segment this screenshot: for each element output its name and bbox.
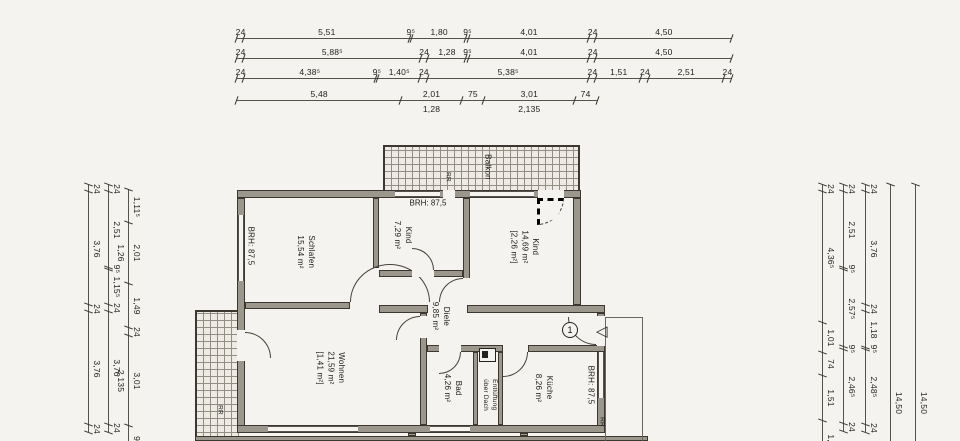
dimension-chain: 1,11⁵2,011,261,49243,012,13599 [128,190,129,441]
entrance-number-badge: 1 [562,322,578,338]
dimension-chain: 244,36⁵1,01741,511,49 [822,185,823,441]
door-kind2 [463,278,470,302]
dim-value: 3,76 [869,240,879,257]
room-label-kind2: Kind 14,69 m² [2,26 m²] [508,230,540,263]
dim-subvalue: 1,28 [423,104,440,114]
dim-value: 1,11⁵ [132,196,142,216]
window-kueche [598,352,604,398]
dim-value: 9⁵ [463,47,472,57]
dim-value: 24 [132,327,142,337]
wall-neighbor-stub-1 [408,433,416,436]
dim-value: 75 [468,89,478,99]
dim-value: 74 [581,89,591,99]
dim-value: 9⁵ [847,344,857,353]
dim-value: 24 [869,184,879,194]
wall-neighbor-bottom [195,436,648,441]
window-bad [430,426,470,432]
dim-value: 2,57⁵ [847,298,857,319]
door-balcony-wohnen [237,330,245,361]
dim-value: 24 [92,304,102,314]
dim-value: 4,50 [655,47,672,57]
wall-schlafen-bottom [245,302,350,309]
balcony-left [195,310,239,441]
dim-value: 74 [826,359,836,369]
room-label-wohnen: Wohnen 21,59 m² [1,41 m²] [314,351,346,384]
dim-value: 24 [112,303,122,313]
dim-value: 9⁵ [112,265,122,274]
door-bad [439,345,461,352]
rainpipe-label-balcony-left: RR [215,405,224,415]
dim-value: 5,48 [311,89,328,99]
dim-value: 1,28 [438,47,455,57]
room-label-schlafen: Schlafen 15,54 m² [294,235,316,268]
wall-neighbor-stub-2 [520,433,528,436]
stair-landing-outline [605,317,643,441]
dim-value: 5,38⁵ [498,67,519,77]
window-kind1 [395,191,440,197]
dim-value: 24 [112,423,122,433]
dim-value: 24 [112,184,122,194]
room-label-diele: Diele 9,85 m² [429,302,451,331]
dim-value: 2,51 [112,221,122,238]
dim-value: 1,40⁵ [389,67,410,77]
dim-value: 3,76 [92,360,102,377]
dim-value: 1,51 [610,67,627,77]
door-arc-kind2 [439,278,463,302]
dim-value: 2,46⁵ [847,376,857,397]
wall-entrance-top [467,305,605,313]
dim-value: 24 [92,184,102,194]
wall-shaft-left [473,352,478,425]
floor-plan-sheet: 1 ◁ Schlafen 15,54 m² Kind 7,29 m² Kind … [0,0,960,441]
dim-value: 1,51 [826,389,836,406]
door-arc-balcony-kind2 [537,198,564,225]
room-label-bad: Bad 4,26 m² [441,374,463,403]
door-arc-wohnen [396,316,420,340]
door-arc-double-left [350,264,390,302]
room-label-kind1: Kind 7,29 m² [391,221,413,250]
window-wohnen [268,426,358,432]
room-label-kueche: Küche 8,26 m² [532,374,554,403]
dimension-chain: 243,76241,189⁵2,48⁵24 [865,185,866,432]
dimension-chain: 242,519⁵2,57⁵9⁵2,46⁵24 [843,185,844,431]
dim-value: 24 [869,423,879,433]
dim-value: 1,15⁵ [112,277,122,298]
dim-value: 5,51 [318,27,335,37]
balcony-label: Balkon [482,154,493,180]
dim-value: 2,01 [423,89,440,99]
wall-schlafen-kind [373,198,379,268]
brh-label-top: BRH: 87,5 [410,199,447,208]
dimension-chain: 245,519⁵1,809⁵4,01244,50 [237,38,731,39]
dim-value: 9⁵ [869,345,879,354]
dimension-chain: 245,88⁵241,289⁵4,01244,50 [237,58,731,59]
dim-subvalue: 1,26 [116,245,126,262]
dim-value: 24 [847,422,857,432]
dimension-chain: 243,76243,7624 [88,185,89,432]
wall-right-upper [573,198,581,305]
dim-value: 4,01 [520,47,537,57]
dim-value: 2,01 [132,245,142,262]
dim-value: 24 [92,424,102,434]
door-arc-kueche [503,352,528,377]
dimension-chain: 5,482,011,28753,012,13574 [237,100,597,101]
window-schlafen [238,215,244,281]
dim-value: 1,80 [431,27,448,37]
dim-value: 1,49 [826,434,836,441]
dim-value: 3,01 [521,89,538,99]
dim-subvalue: 2,135 [518,104,540,114]
dim-value: 5,88⁵ [322,47,343,57]
dim-value: 14,50 [919,391,929,413]
dim-value: 4,38⁵ [299,67,320,77]
dim-value: 1,49 [132,297,142,314]
dim-value: 3,76 [92,240,102,257]
brh-label-right: BRH: 87,5 [585,366,596,405]
dim-value: 9⁵ [463,27,472,37]
entrance-arrow-icon: ◁ [596,324,608,339]
dimension-chain: 244,38⁵9⁵1,40⁵245,38⁵241,51242,5124 [237,78,731,79]
dim-value: 2,51 [678,67,695,77]
dim-value: 9⁵ [847,265,857,274]
dim-value: 2,51 [847,221,857,238]
wall-diele-top-left [379,305,428,313]
dimension-chain: 14,50 [915,185,916,441]
dim-value: 99 [132,436,142,441]
dim-value: 3,01 [132,372,142,389]
dim-value: 14,50 [894,391,904,413]
dim-value: 4,36⁵ [826,247,836,268]
window-kind2 [470,191,534,197]
dim-subvalue: 2,135 [116,370,126,392]
vent-label: Entlüftung über Dach [480,379,498,411]
door-wohnen [420,316,427,338]
dim-value: 4,01 [520,27,537,37]
wall-kueche-top [528,345,605,352]
dim-value: 24 [847,184,857,194]
brh-label-left: BRH: 87,5 [245,227,256,266]
door-balcony-kind2 [538,190,564,198]
dim-value: 24 [826,184,836,194]
door-arc-bad [439,352,461,374]
opening-balcony-pipe [443,190,455,198]
rainpipe-label-right: RR [597,417,606,427]
dim-value: 24 [869,304,879,314]
rainpipe-label-balcony-top: RR [443,172,452,182]
dim-value: 4,50 [655,27,672,37]
dim-value: 2,48⁵ [869,377,879,398]
door-arc-balcony-wohnen [245,332,271,358]
entrance-number: 1 [567,325,572,335]
door-kind1 [412,270,434,277]
door-arc-kind1 [412,248,434,270]
dim-value: 1,18 [869,321,879,338]
dimension-chain: 14,50 [890,185,891,441]
dimension-chain: 242,519⁵1,15⁵243,7624 [108,185,109,432]
dim-value: 1,01 [826,329,836,346]
vent-shaft-icon [479,348,496,362]
